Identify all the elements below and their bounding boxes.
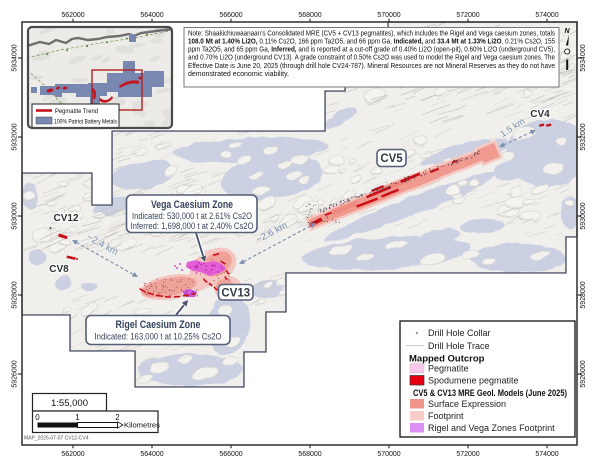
svg-text:572000: 572000 xyxy=(456,451,479,458)
svg-text:Footprint: Footprint xyxy=(428,411,464,421)
svg-text:MAP_2025-07-07 CV12-CV4: MAP_2025-07-07 CV12-CV4 xyxy=(24,436,89,442)
svg-text:ppm Ta2O5, and 65 ppm Ga, Infe: ppm Ta2O5, and 65 ppm Ga, Inferred, and … xyxy=(188,47,555,54)
svg-text:568000: 568000 xyxy=(298,12,321,19)
svg-text:5932000: 5932000 xyxy=(580,123,587,150)
svg-text:CV5 & CV13 MRE Geol. Models (J: CV5 & CV13 MRE Geol. Models (June 2025) xyxy=(413,388,567,399)
svg-text:570000: 570000 xyxy=(377,451,400,458)
svg-text:Vega Caesium Zone: Vega Caesium Zone xyxy=(151,199,233,211)
svg-text:Surface Expression: Surface Expression xyxy=(428,399,506,409)
svg-text:CV8: CV8 xyxy=(49,264,69,275)
svg-text:5930000: 5930000 xyxy=(12,202,19,229)
svg-text:Rigel Caesium Zone: Rigel Caesium Zone xyxy=(116,319,201,331)
svg-text:demonstrated economic viabilit: demonstrated economic viability. xyxy=(188,71,289,78)
svg-text:5932000: 5932000 xyxy=(12,123,19,150)
svg-text:5930000: 5930000 xyxy=(580,202,587,229)
svg-text:Spodumene pegmatite: Spodumene pegmatite xyxy=(428,376,519,386)
svg-text:Kilometres: Kilometres xyxy=(124,421,160,430)
svg-text:108.0 Mt at 1.40% Li2O, 0.11%: 108.0 Mt at 1.40% Li2O, 0.11% Cs2O, 166 … xyxy=(188,39,555,46)
svg-text:Drill Hole Collar: Drill Hole Collar xyxy=(428,328,491,338)
svg-text:568000: 568000 xyxy=(298,451,321,458)
svg-text:572000: 572000 xyxy=(456,12,479,19)
svg-text:Rigel and Vega Zones Footprint: Rigel and Vega Zones Footprint xyxy=(428,423,555,433)
svg-text:CV5: CV5 xyxy=(380,153,403,165)
svg-text:1: 1 xyxy=(75,413,80,422)
svg-text:564000: 564000 xyxy=(140,451,163,458)
svg-text:566000: 566000 xyxy=(219,12,242,19)
svg-text:Pegmatite Trend: Pegmatite Trend xyxy=(55,108,98,115)
svg-text:Note: Shaakichiuwaanaan’s Cons: Note: Shaakichiuwaanaan’s Consolidated M… xyxy=(188,30,555,37)
svg-text:CV13: CV13 xyxy=(221,287,250,299)
svg-text:562000: 562000 xyxy=(61,451,84,458)
svg-text:5928000: 5928000 xyxy=(580,281,587,308)
svg-text:100% Patriot Battery Metals: 100% Patriot Battery Metals xyxy=(54,119,117,126)
svg-text:566000: 566000 xyxy=(219,451,242,458)
svg-text:CV4: CV4 xyxy=(530,109,550,120)
svg-text:562000: 562000 xyxy=(61,12,84,19)
svg-text:574000: 574000 xyxy=(535,451,558,458)
svg-text:5934000: 5934000 xyxy=(580,44,587,71)
svg-text:Drill Hole Trace: Drill Hole Trace xyxy=(428,341,490,351)
svg-text:Indicated: 530,000 t at 2.61%: Indicated: 530,000 t at 2.61% Cs2O xyxy=(132,211,252,221)
svg-text:Pegmatite: Pegmatite xyxy=(428,364,469,374)
svg-text:Inferred: 1,698,000 t at 2.40%: Inferred: 1,698,000 t at 2.40% Cs2O xyxy=(131,221,254,231)
svg-text:5926000: 5926000 xyxy=(12,360,19,387)
svg-text:2: 2 xyxy=(115,413,120,422)
svg-text:5926000: 5926000 xyxy=(580,360,587,387)
svg-text:1:55,000: 1:55,000 xyxy=(51,398,88,409)
svg-text:Indicated: 163,000 t at 10.25%: Indicated: 163,000 t at 10.25% Cs2O xyxy=(95,332,222,342)
svg-text:CV12: CV12 xyxy=(53,213,78,224)
svg-text:5928000: 5928000 xyxy=(12,281,19,308)
svg-text:Effective Date is June 20, 202: Effective Date is June 20, 2025 (through… xyxy=(188,63,555,70)
svg-text:and 0.70% Li2O (underground CV: and 0.70% Li2O (underground CV13). A gra… xyxy=(188,55,555,62)
svg-text:574000: 574000 xyxy=(535,12,558,19)
svg-text:570000: 570000 xyxy=(377,12,400,19)
svg-text:564000: 564000 xyxy=(140,12,163,19)
svg-text:0: 0 xyxy=(35,413,40,422)
svg-text:5934000: 5934000 xyxy=(12,44,19,71)
